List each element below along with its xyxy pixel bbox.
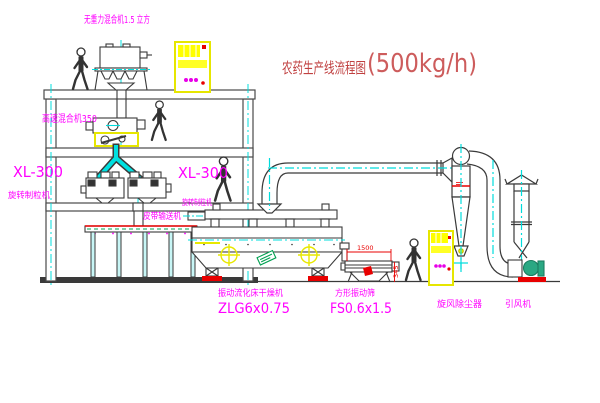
granulator-discharge-duct [133, 203, 143, 226]
granulator-right-model: XL-300 [178, 164, 228, 182]
sieve-height-dim: 345 [392, 266, 400, 278]
granulator-right [128, 172, 171, 203]
granulator-left-model: XL-300 [13, 163, 63, 181]
diagram-title: 农药生产线流程图 [282, 59, 366, 77]
flow-diagram-canvas: 农药生产线流程图 (500kg/h) 无重力混合机1.5 立方 高速混合机350… [0, 0, 600, 403]
indicator-light-icon [202, 45, 206, 49]
belt-conveyor [85, 226, 197, 277]
sieve-width-dim: 1500 [357, 244, 374, 252]
dryer-label: 振动流化床干燥机 [218, 287, 283, 299]
gravity-mixer-label: 无重力混合机1.5 立方 [84, 13, 150, 26]
granulator-right-label: 旋转制粒机 [182, 197, 212, 207]
sieve-label: 方形振动筛 [335, 287, 375, 299]
diagram-capacity: (500kg/h) [367, 49, 477, 79]
dryer-model: ZLG6x0.75 [218, 301, 290, 317]
knob-icons [184, 78, 198, 82]
cyclone-label: 旋风除尘器 [437, 298, 482, 310]
person-figure [152, 101, 166, 140]
knob-icons [434, 264, 446, 268]
person-figure [73, 48, 88, 89]
ground-line [40, 280, 560, 282]
person-figure [406, 239, 421, 280]
high-speed-mixer-label: 高速混合机350 [42, 112, 97, 125]
control-cabinet-2 [429, 231, 453, 285]
belt-conveyor-label: 皮带输送机 [143, 210, 181, 222]
fan-label: 引风机 [505, 298, 531, 310]
dryer-feed-duct [183, 212, 208, 220]
control-cabinet-1 [175, 42, 210, 92]
granulator-left [81, 172, 124, 203]
granulator-left-label: 旋转制粒机 [8, 190, 50, 201]
sieve-model: FS0.6x1.5 [330, 301, 392, 317]
spring-mounts [202, 268, 328, 281]
indicator-light-icon [448, 236, 451, 239]
exhaust-duct [258, 158, 458, 213]
induced-draft-fan [508, 260, 546, 282]
fluid-bed-dryer [188, 204, 345, 281]
